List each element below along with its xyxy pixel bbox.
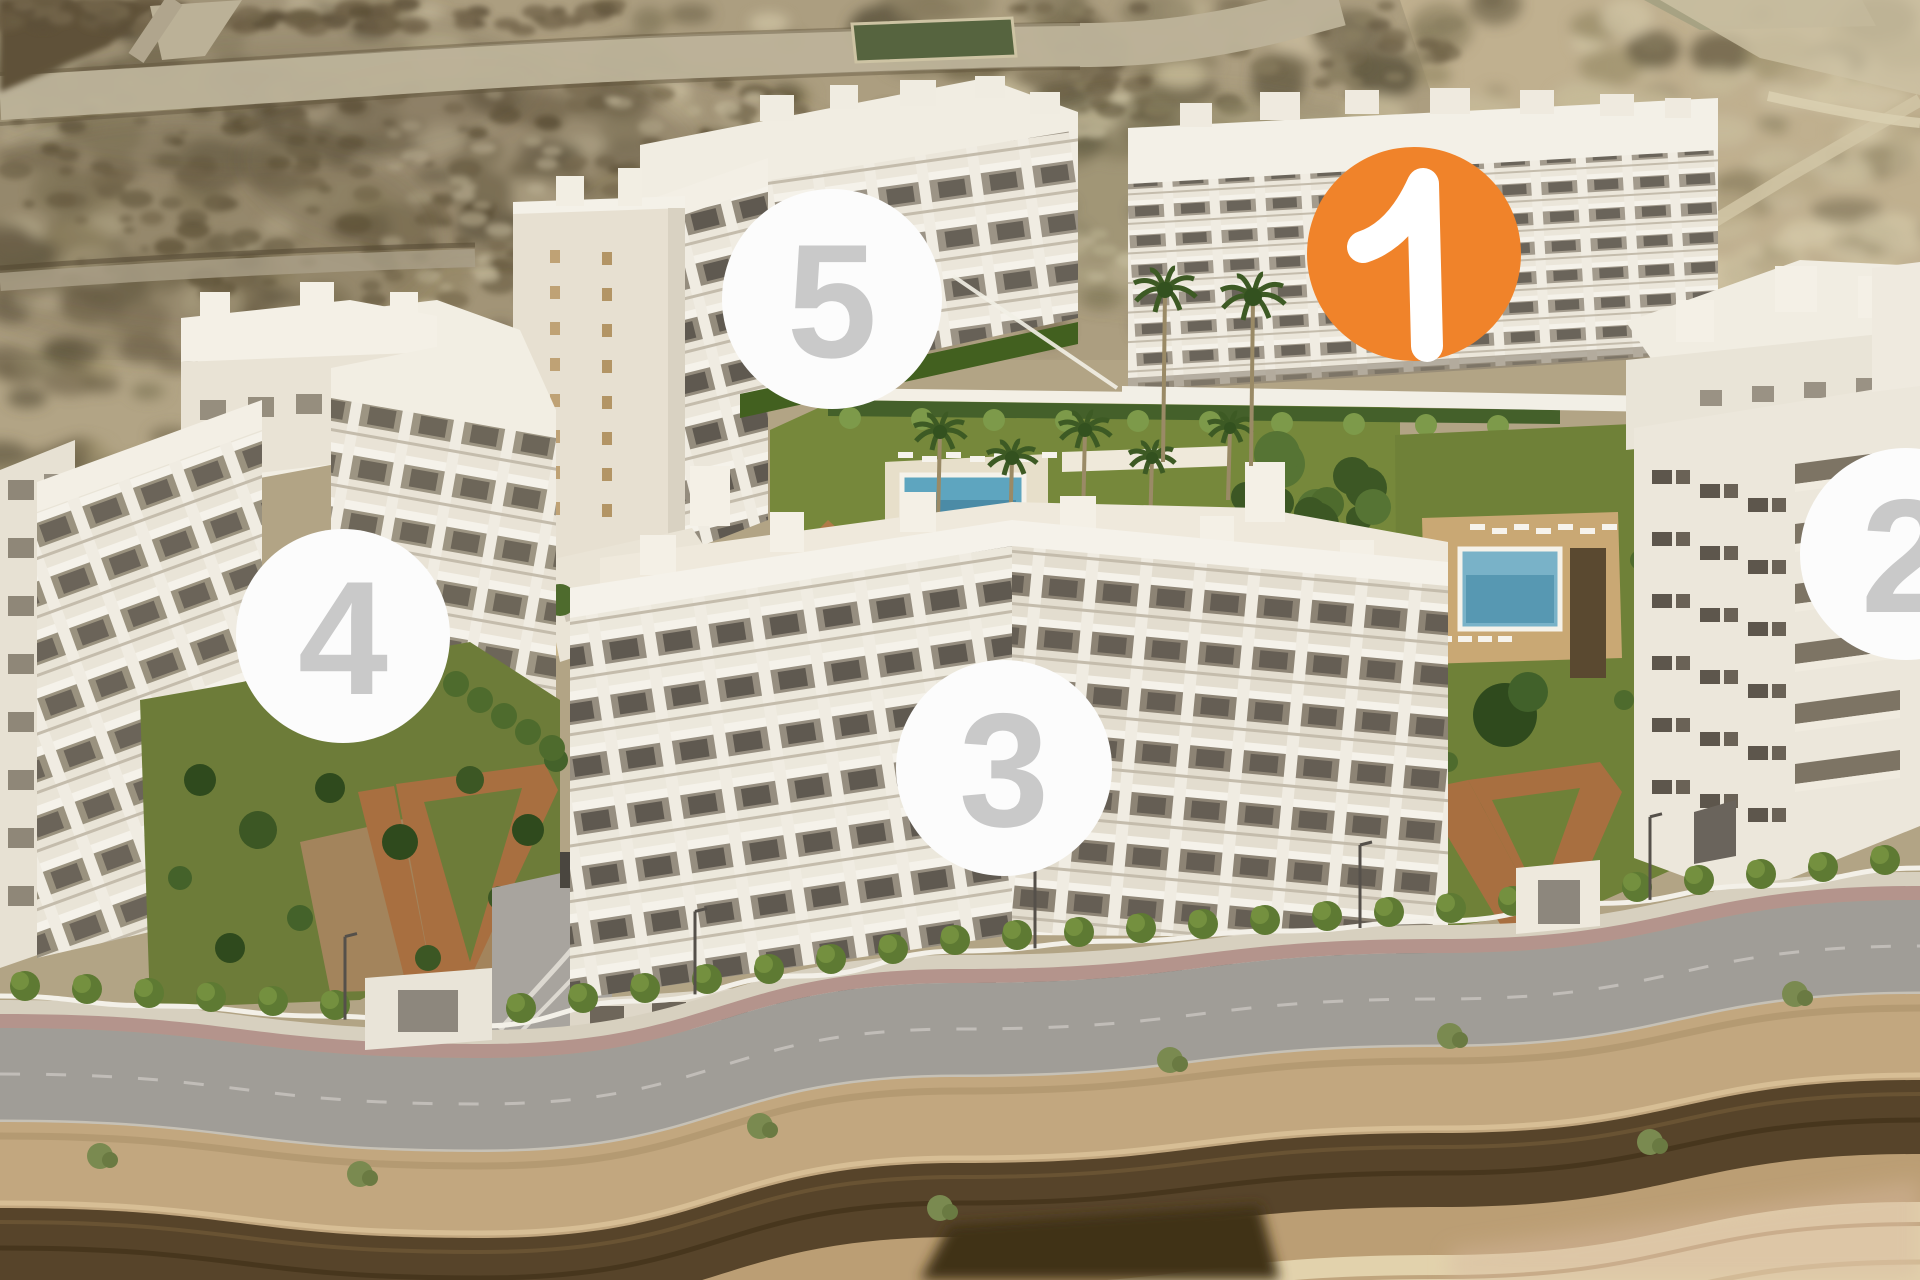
- svg-text:2: 2: [1861, 466, 1920, 647]
- svg-text:3: 3: [959, 680, 1049, 861]
- svg-text:5: 5: [787, 211, 877, 392]
- svg-text:4: 4: [298, 548, 388, 729]
